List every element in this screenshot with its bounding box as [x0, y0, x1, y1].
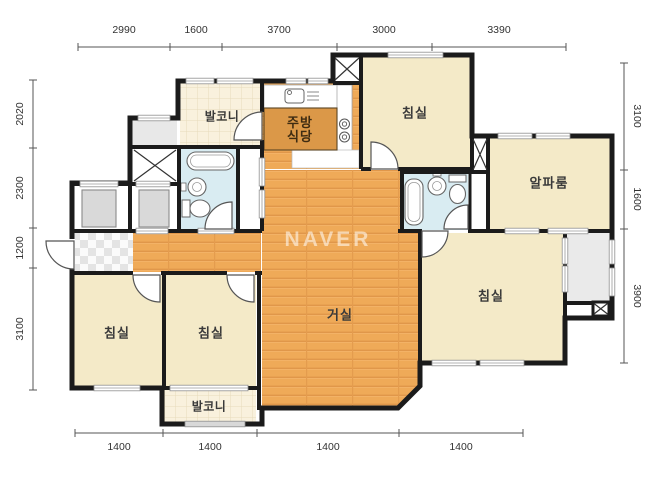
front-door-icon — [46, 241, 74, 269]
dimension-label: 1400 — [316, 441, 339, 453]
dimension-label: 3100 — [14, 317, 26, 340]
dimension-label: 2300 — [14, 176, 26, 199]
room-label-alpha-room: 알파룸 — [530, 173, 569, 192]
bathtub-icon — [187, 152, 234, 170]
toilet-icon — [449, 175, 466, 204]
dimension-label: 1200 — [14, 236, 26, 259]
dimension-label: 1400 — [449, 441, 472, 453]
toilet-icon — [182, 200, 210, 217]
dimension-label: 3700 — [267, 24, 290, 36]
dimension-label: 3900 — [631, 284, 643, 307]
dimension-label: 3000 — [372, 24, 395, 36]
floorplan-canvas: 발코니 주방 식당 침실 알파룸 거실 침실 침실 침실 발코니 NAVER 2… — [0, 0, 658, 481]
room-label-balcony-top: 발코니 — [205, 108, 240, 125]
entrance-tile — [74, 233, 133, 272]
dimension-label: 1600 — [184, 24, 207, 36]
room-label-bedroom-master: 침실 — [478, 286, 504, 305]
room-label-bedroom-left: 침실 — [104, 323, 130, 342]
dimension-label: 1400 — [198, 441, 221, 453]
room-label-kitchen: 주방 식당 — [287, 116, 313, 144]
room-label-living-room: 거실 — [327, 305, 353, 324]
dimension-label: 1600 — [631, 187, 643, 210]
room-label-bedroom-top: 침실 — [402, 103, 428, 122]
room-label-bedroom-center: 침실 — [198, 323, 224, 342]
dimension-label: 3100 — [631, 104, 643, 127]
dimension-label: 1400 — [107, 441, 130, 453]
dimension-label: 3390 — [487, 24, 510, 36]
dimension-label: 2990 — [112, 24, 135, 36]
naver-watermark: NAVER — [285, 228, 372, 252]
room-label-balcony-bottom: 발코니 — [192, 398, 227, 415]
dimension-label: 2020 — [14, 102, 26, 125]
bathtub-icon — [405, 179, 423, 225]
elevator-icon — [82, 190, 169, 227]
